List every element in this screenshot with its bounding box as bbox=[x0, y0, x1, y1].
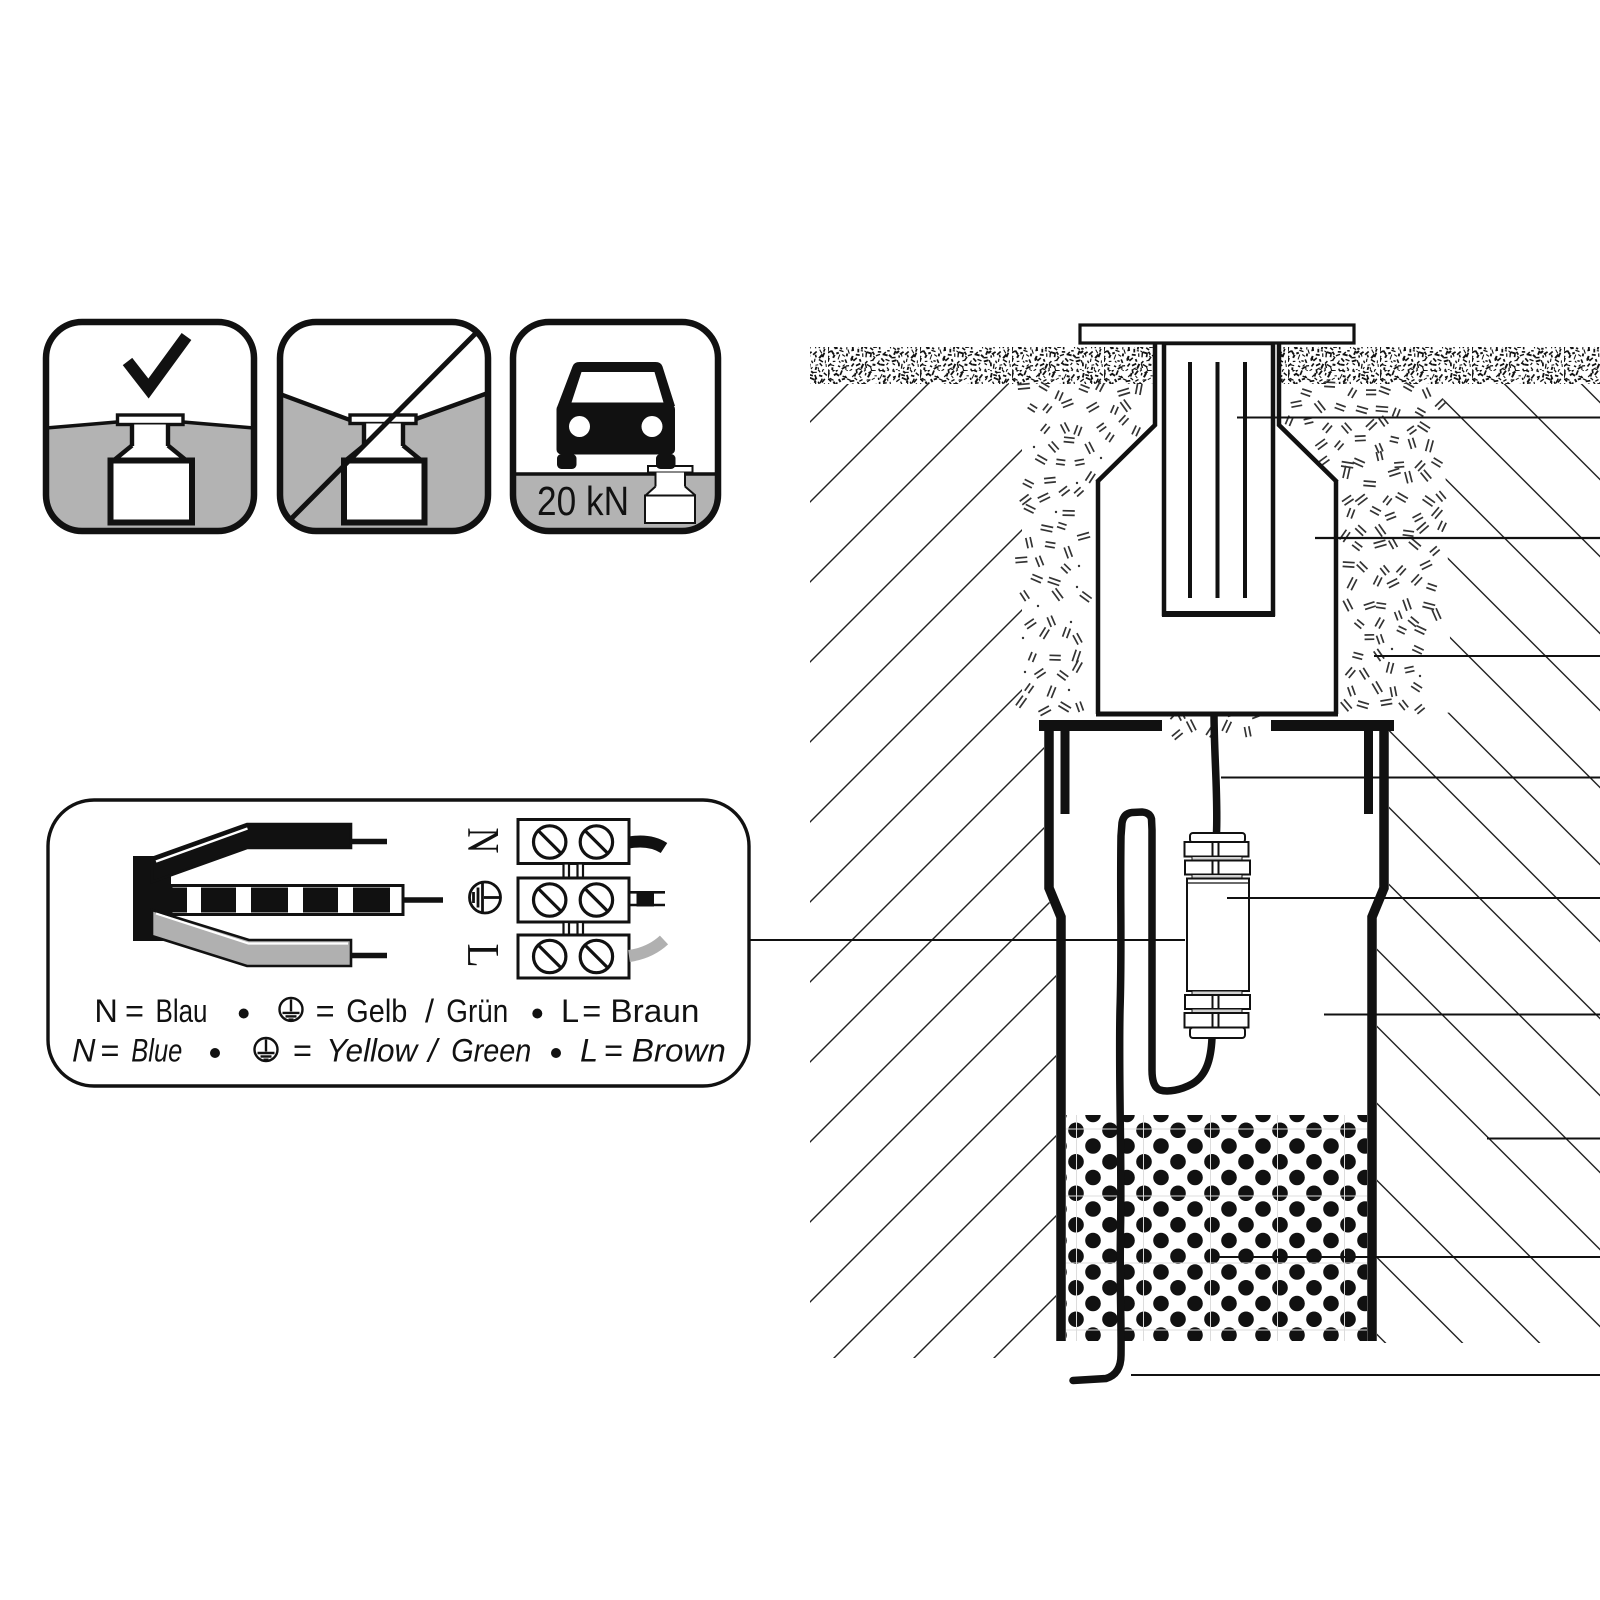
svg-text:Braun: Braun bbox=[610, 993, 699, 1029]
svg-text:=: = bbox=[125, 993, 144, 1029]
svg-text:=: = bbox=[582, 993, 601, 1029]
svg-text:20 kN: 20 kN bbox=[537, 478, 629, 524]
svg-text:Brown: Brown bbox=[632, 1033, 726, 1069]
svg-text:Green: Green bbox=[451, 1033, 531, 1069]
svg-text:Blau: Blau bbox=[156, 993, 208, 1029]
svg-text:L: L bbox=[457, 944, 507, 968]
svg-text:N: N bbox=[72, 1033, 96, 1069]
svg-text:=: = bbox=[604, 1033, 623, 1069]
svg-text:Blue: Blue bbox=[131, 1033, 182, 1069]
svg-text:Yellow: Yellow bbox=[326, 1033, 419, 1069]
svg-text:=: = bbox=[293, 1033, 312, 1069]
svg-text:L: L bbox=[561, 993, 579, 1029]
svg-text:L: L bbox=[580, 1033, 598, 1069]
svg-text:=: = bbox=[100, 1033, 119, 1069]
svg-text:Grün: Grün bbox=[446, 993, 508, 1029]
svg-text:=: = bbox=[316, 993, 335, 1029]
svg-text:N: N bbox=[458, 828, 508, 854]
svg-text:Gelb: Gelb bbox=[346, 993, 407, 1029]
svg-text:N: N bbox=[94, 993, 117, 1029]
svg-text:/: / bbox=[425, 993, 435, 1029]
